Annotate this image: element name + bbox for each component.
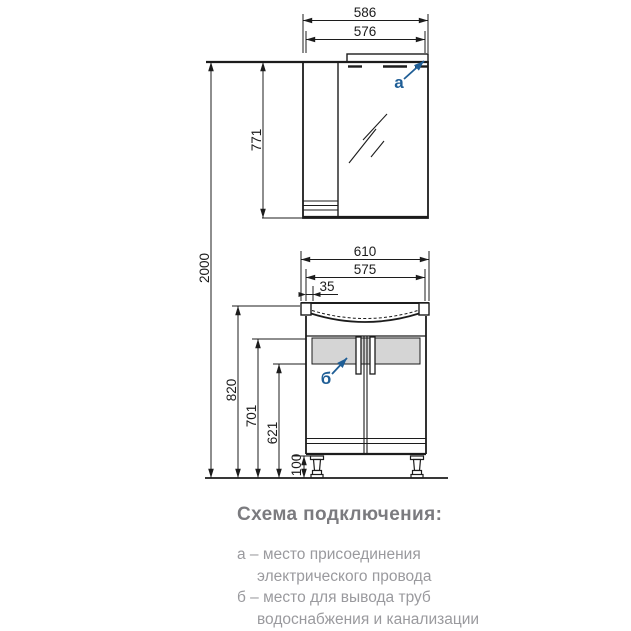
door-handle-left [356,337,361,374]
pipe-outlet-zone [312,338,420,364]
legend: Схема подключения: а – место присоединен… [237,504,537,630]
leg-left [311,456,324,478]
dim-pipe-zone-bottom: 621 [265,422,280,445]
legend-item-electric-line1: а – место присоединения [237,544,537,566]
furniture-connection-scheme: 586 576 а 2000 771 [0,0,631,631]
dim-vanity-height: 820 [224,379,239,402]
dim-vanity-width: 575 [354,262,377,277]
dim-basin-offset: 35 [319,279,334,294]
door-bottom-rails [306,439,426,444]
mirror-cabinet-body [303,62,428,218]
dim-leg-height: 100 [289,454,304,477]
dim-total-height: 2000 [197,253,212,283]
basin-rim-left [301,303,311,315]
legend-item-electric-line2: электрического провода [237,566,537,588]
legend-items: а – место присоединения электрического п… [237,544,537,630]
legend-item-pipes-line1: б – место для вывода труб [237,587,537,609]
dim-pipe-zone-top: 701 [244,405,259,428]
legend-title: Схема подключения: [237,504,537,526]
leg-right [411,456,424,478]
callout-b-label: б [321,369,332,388]
callout-a-label: а [394,73,404,92]
dim-mirror-inner-width: 576 [354,24,377,39]
door-handle-right [370,337,375,374]
legend-item-pipes-line2: водоснабжения и канализации [237,609,537,631]
dim-mirror-height: 771 [249,129,264,152]
vanity-cabinet [301,303,429,478]
light-fixture [347,54,428,62]
basin-rim-right [419,303,429,315]
vanity-left-dimensions [232,306,311,478]
dim-basin-width: 610 [354,244,377,259]
dim-arrow [299,292,307,297]
dim-mirror-outer-width: 586 [354,5,377,20]
